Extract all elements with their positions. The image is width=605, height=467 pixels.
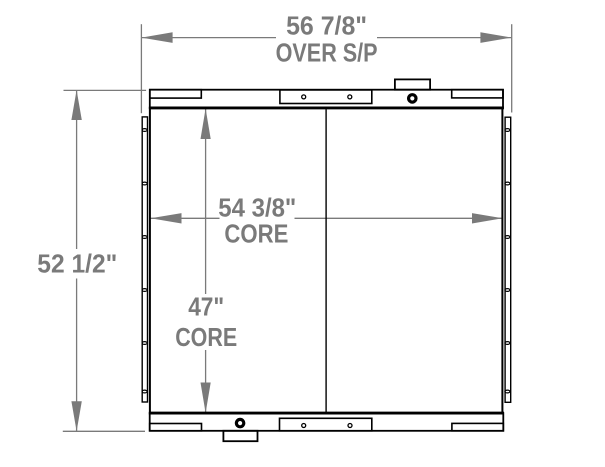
svg-text:CORE: CORE [175,322,237,352]
svg-text:CORE: CORE [224,219,288,249]
svg-text:OVER S/P: OVER S/P [276,37,378,67]
svg-text:52 1/2": 52 1/2" [37,249,117,279]
svg-text:56 7/8": 56 7/8" [286,11,367,41]
svg-text:47": 47" [188,292,224,322]
